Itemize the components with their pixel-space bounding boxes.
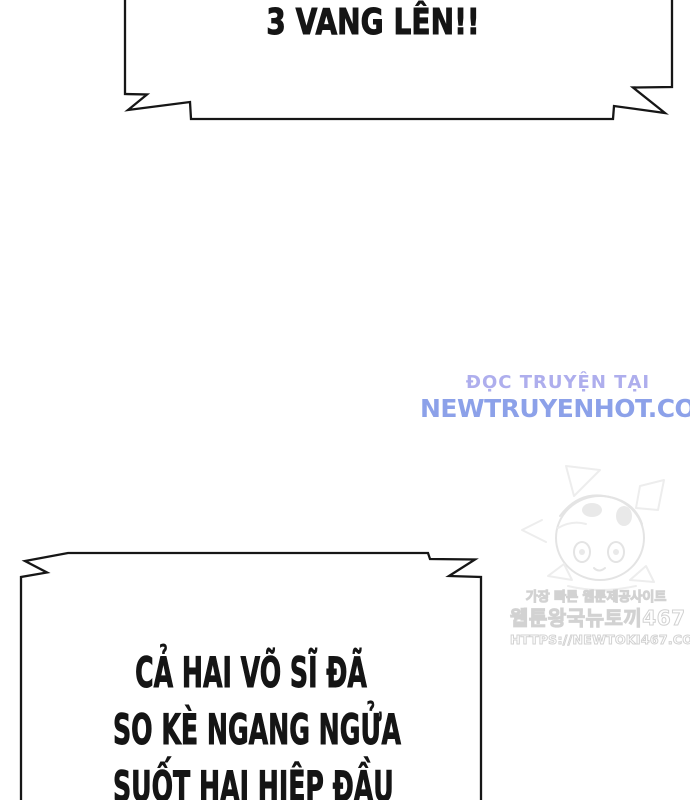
korean-watermark-url: HTTPS://NEWTOKI467.COM [510,632,682,647]
site-watermark: ĐỌC TRUYỆN TẠI NEWTRUYENHOT.COM [420,372,690,423]
narration-line-2: SO KÈ NGANG NGỬA [113,707,389,753]
chibi-mascot-illustration [512,458,690,596]
site-watermark-tagline: ĐỌC TRUYỆN TẠI [420,372,690,393]
narration-line-1: CẢ HAI VÕ SĨ ĐÃ [113,650,389,696]
narration-line-3: SUỐT HAI HIỆP ĐẦU [113,764,389,800]
speech-bubble-top-text: 3 VANG LÊN!! [143,1,603,45]
site-watermark-domain: NEWTRUYENHOT.COM [420,394,690,423]
korean-watermark: 가장 빠른 웹툰제공사이트 웹툰왕국뉴토끼467 HTTPS://NEWTOKI… [510,586,682,652]
korean-watermark-sitename: 웹툰왕국뉴토끼467 [510,602,682,631]
webtoon-page: 3 VANG LÊN!! ĐỌC TRUYỆN TẠI NEWTRUYENHOT… [0,0,690,800]
